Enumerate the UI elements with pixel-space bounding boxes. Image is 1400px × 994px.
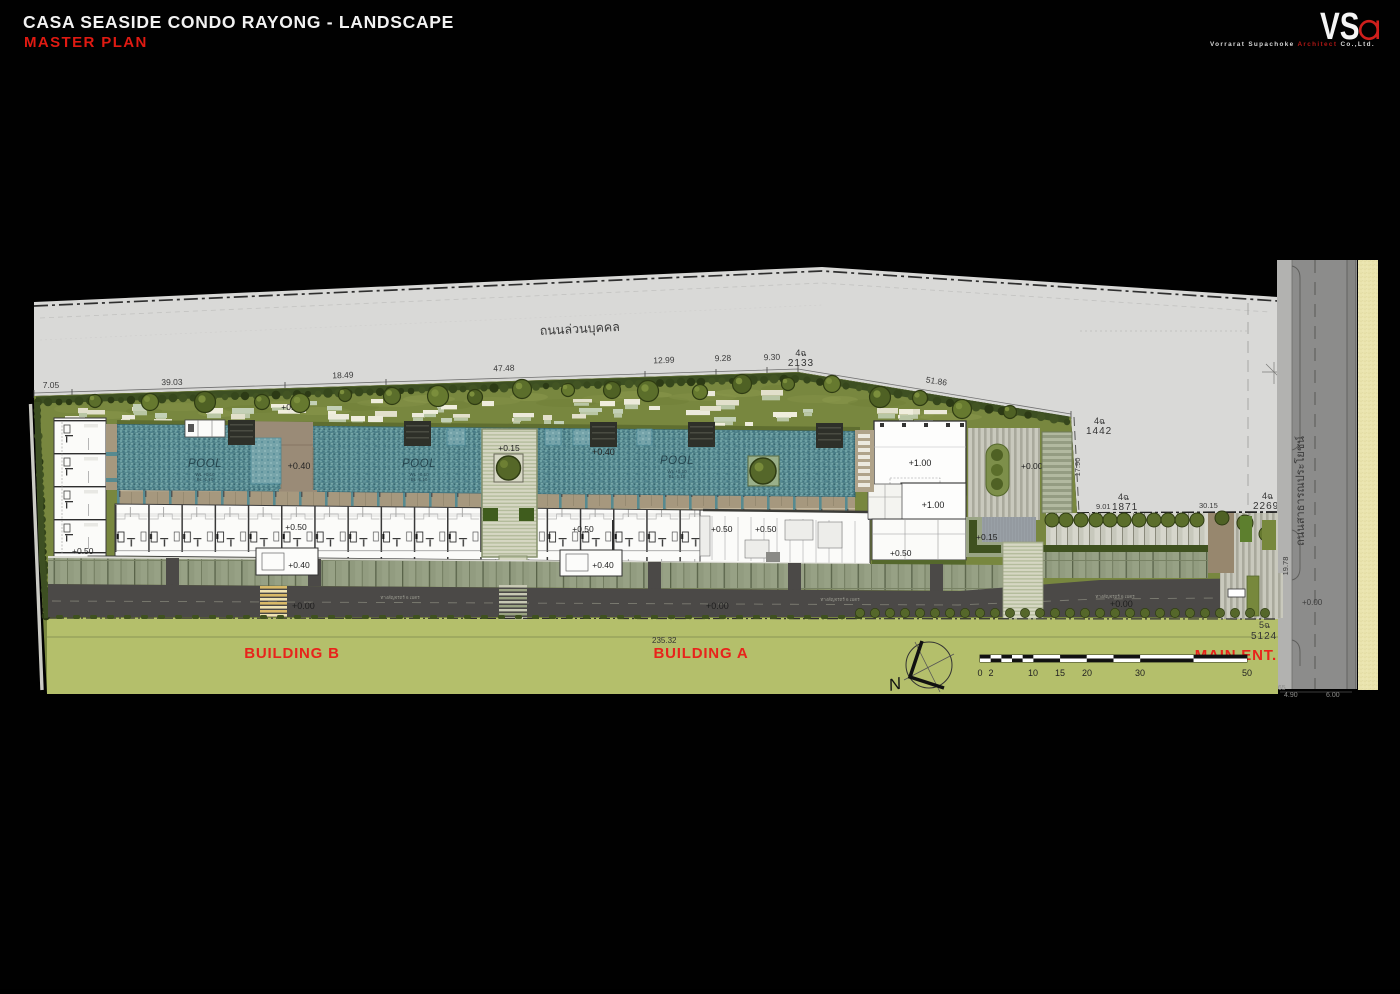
svg-text:10: 10 [1028,668,1038,678]
svg-text:5ฉ: 5ฉ [1259,620,1270,630]
svg-text:6.00: 6.00 [1326,692,1340,699]
svg-text:9.30: 9.30 [763,352,780,363]
svg-text:+0.50: +0.50 [711,524,733,534]
svg-text:4.90: 4.90 [1284,692,1298,699]
svg-text:30.15: 30.15 [1199,501,1218,510]
svg-text:19.78: 19.78 [1281,557,1290,576]
svg-text:+0.50: +0.50 [572,524,594,534]
svg-text:30: 30 [1135,668,1145,678]
svg-text:50: 50 [1242,668,1252,678]
svg-text:Vorrarat Supachoke Architect C: Vorrarat Supachoke Architect Co.,Ltd. [1210,41,1375,48]
svg-text:+0.40: +0.40 [592,447,615,457]
svg-text:47.48: 47.48 [493,363,515,374]
svg-text:+0.00: +0.00 [1302,598,1323,607]
svg-text:9.28: 9.28 [714,353,731,364]
svg-text:39.03: 39.03 [161,377,183,387]
svg-text:+0.40: +0.40 [592,560,614,570]
svg-text:20: 20 [1082,668,1092,678]
svg-text:+0.40: +0.40 [288,461,311,471]
svg-text:BUILDING A: BUILDING A [654,645,749,662]
svg-text:+1.00: +1.00 [909,458,932,468]
svg-text:9.01: 9.01 [1096,502,1111,511]
svg-text:+0.00: +0.00 [1021,461,1043,471]
svg-text:ถนนสาธารณประโยชน์: ถนนสาธารณประโยชน์ [1293,436,1307,546]
svg-text:POOL: POOL [402,458,436,470]
svg-text:+0.00: +0.00 [292,601,315,611]
svg-text:0: 0 [977,668,982,678]
svg-text:CASA SEASIDE CONDO RAYONG - LA: CASA SEASIDE CONDO RAYONG - LANDSCAPE [23,12,454,32]
svg-text:18.49: 18.49 [332,370,354,381]
svg-text:5124: 5124 [1251,631,1277,642]
svg-text:2.16: 2.16 [1330,683,1344,690]
svg-text:+0.50: +0.50 [285,522,307,532]
svg-text:+0.15: +0.15 [498,443,520,453]
svg-text:ทางสัญจรถร์ 6 เมตร: ทางสัญจรถร์ 6 เมตร [820,596,860,602]
svg-text:+0.50: +0.50 [72,546,94,556]
svg-text:MASTER PLAN: MASTER PLAN [24,34,148,51]
svg-text:BL -1.10: BL -1.10 [411,477,428,482]
svg-text:4ฉ: 4ฉ [795,348,806,358]
svg-text:235.32: 235.32 [652,636,677,645]
svg-text:+0.15: +0.15 [976,532,998,542]
svg-text:+0.50: +0.50 [755,524,777,534]
svg-text:+0.40: +0.40 [288,560,310,570]
svg-text:1442: 1442 [1086,426,1112,437]
svg-text:BL -1.10: BL -1.10 [669,474,686,479]
svg-text:+0.00: +0.00 [1110,599,1133,609]
svg-text:7.05: 7.05 [43,380,60,390]
svg-text:2133: 2133 [788,358,814,369]
svg-text:BL -1.10: BL -1.10 [197,477,214,482]
svg-text:+1.00: +1.00 [922,500,945,510]
svg-text:+0.00: +0.00 [706,601,729,611]
svg-text:4ฉ: 4ฉ [1094,416,1105,426]
svg-text:15: 15 [1055,668,1065,678]
svg-text:2269: 2269 [1253,501,1279,512]
svg-text:POOL: POOL [660,455,694,467]
svg-text:+0.50: +0.50 [890,548,912,558]
svg-text:12.99: 12.99 [653,355,675,366]
svg-text:POOL: POOL [188,458,222,470]
svg-text:4ฉ: 4ฉ [1262,491,1273,501]
svg-text:ทางสัญจรถร์ 6 เมตร: ทางสัญจรถร์ 6 เมตร [380,594,420,600]
svg-text:BUILDING B: BUILDING B [244,645,340,662]
svg-text:1871: 1871 [1112,502,1138,513]
svg-text:4ฉ: 4ฉ [1118,492,1129,502]
svg-text:2: 2 [988,668,993,678]
